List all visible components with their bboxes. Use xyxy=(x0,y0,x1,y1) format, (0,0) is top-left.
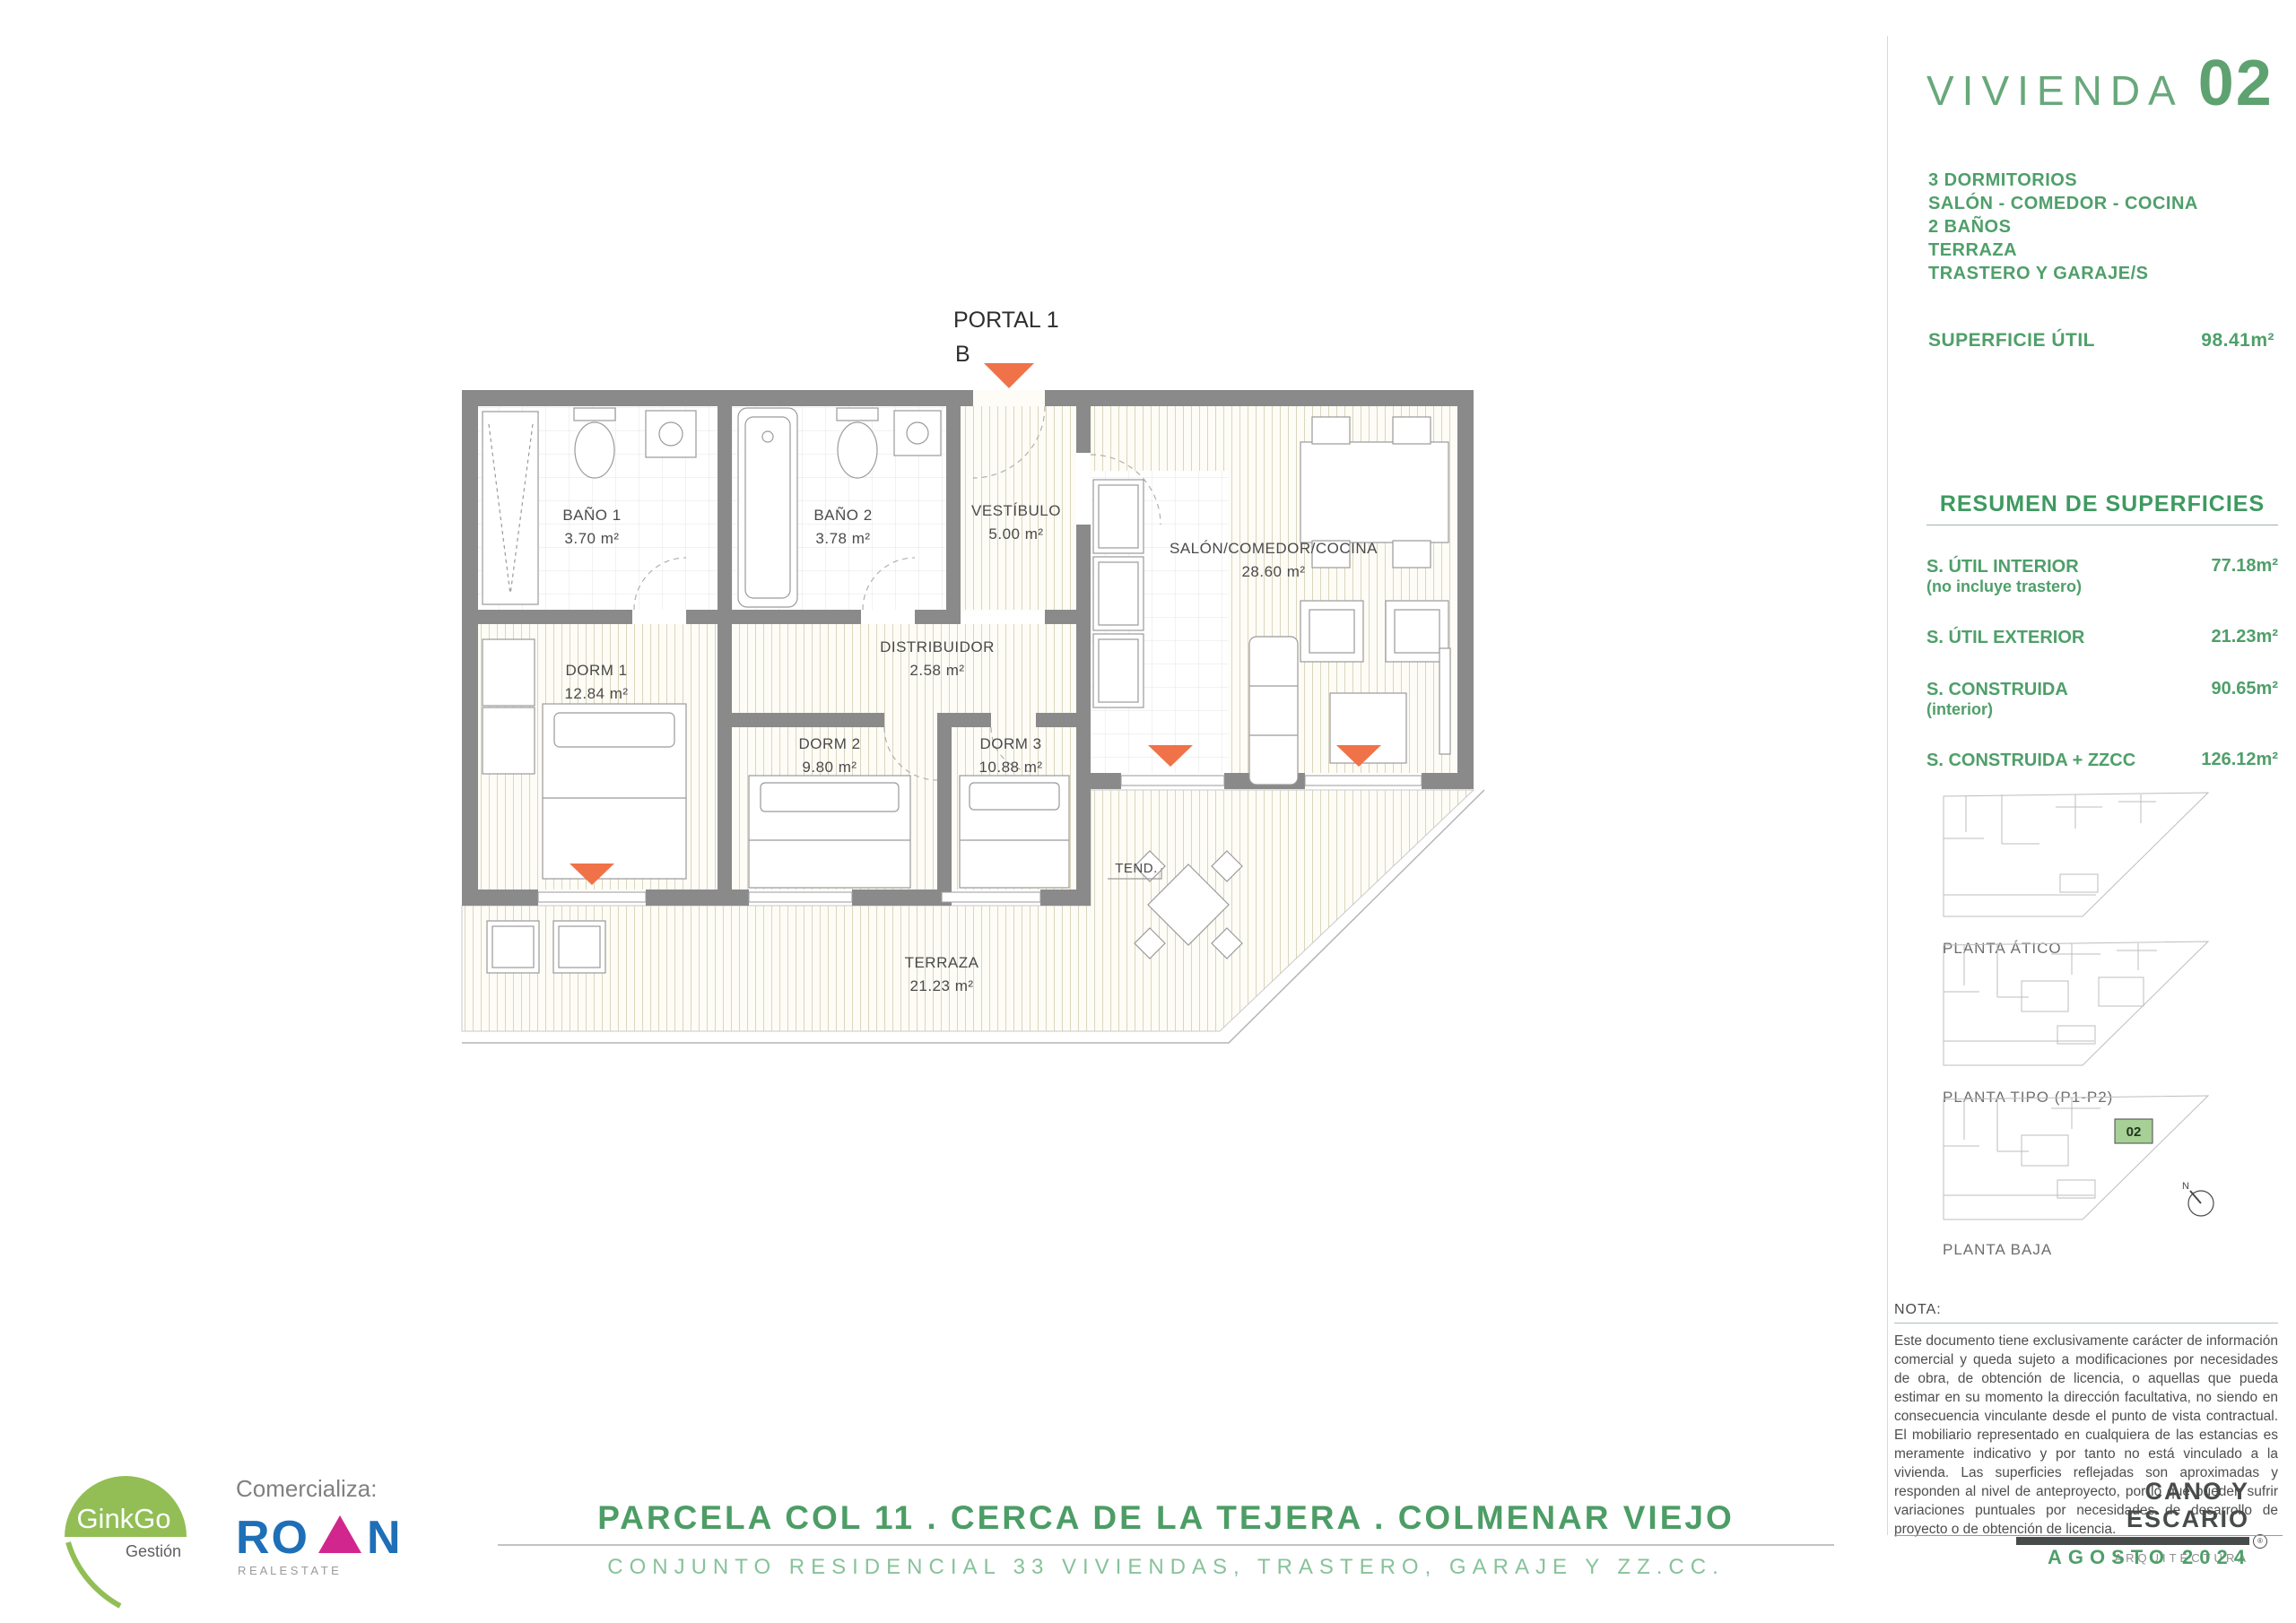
superficie-util-row: SUPERFICIE ÚTIL 98.41m² xyxy=(1928,330,2274,352)
resumen-underline xyxy=(1926,525,2278,525)
unit-title-word: VIVIENDA xyxy=(1926,66,2184,115)
thumbnail-planta-baja: 02 N xyxy=(1939,1092,2244,1227)
thumbnail-planta-atico xyxy=(1939,789,2244,924)
resumen-title: RESUMEN DE SUPERFICIES xyxy=(1926,491,2278,517)
compass-icon: N xyxy=(2182,1181,2213,1216)
thumbnail-label-baja: PLANTA BAJA xyxy=(1943,1241,2052,1259)
roan-right: N xyxy=(367,1512,401,1564)
compass-n-label: N xyxy=(2182,1181,2189,1192)
room-label-dorm1: DORM 1 xyxy=(565,662,627,679)
ginkgo-sub: Gestión xyxy=(126,1542,181,1560)
date-label: AGOSTO 2024 xyxy=(2016,1546,2251,1569)
resumen-row-value: 77.18m² xyxy=(2212,556,2279,577)
feature-item: 3 DORMITORIOS xyxy=(1928,169,2287,192)
ginkgo-logo: GinkGo Gestión xyxy=(56,1467,217,1615)
resumen-row-value: 21.23m² xyxy=(2212,627,2279,647)
footer-center: PARCELA COL 11 . CERCA DE LA TEJERA . CO… xyxy=(498,1499,1834,1580)
registered-mark-icon: ® xyxy=(2253,1534,2267,1549)
room-area-bano2: 3.78 m² xyxy=(815,530,870,547)
resumen-row-label: S. CONSTRUIDA xyxy=(1926,679,2068,700)
thumbnail-planta-tipo xyxy=(1939,938,2244,1072)
room-label-vestibulo: VESTÍBULO xyxy=(971,502,1061,519)
resumen-row-label: S. ÚTIL INTERIOR xyxy=(1926,556,2082,577)
entrance-door-marker-icon xyxy=(984,363,1034,388)
feature-item: TRASTERO Y GARAJE/S xyxy=(1928,262,2287,285)
resumen-row-value: 90.65m² xyxy=(2212,679,2279,699)
roan-logo: RO N R E A L E S T A T E xyxy=(236,1508,433,1584)
feature-item: 2 BAÑOS xyxy=(1928,215,2287,239)
panel-divider xyxy=(1887,36,1888,1535)
floor-plan: PORTAL 1 B xyxy=(453,291,1529,1054)
ginkgo-swoosh xyxy=(68,1542,120,1606)
resumen-row-value: 126.12m² xyxy=(2201,750,2278,770)
comercializa-label: Comercializa: xyxy=(236,1475,378,1503)
room-label-distribuidor: DISTRIBUIDOR xyxy=(880,638,995,655)
unit-title-number: 02 xyxy=(2198,47,2274,120)
resumen-row: S. CONSTRUIDA (interior) 90.65m² xyxy=(1926,679,2278,719)
room-label-bano2: BAÑO 2 xyxy=(813,507,872,524)
project-title: PARCELA COL 11 . CERCA DE LA TEJERA . CO… xyxy=(498,1499,1834,1537)
resumen-row: S. ÚTIL EXTERIOR 21.23m² xyxy=(1926,627,2278,648)
superficie-util-value: 98.41m² xyxy=(2201,330,2274,352)
feature-item: SALÓN - COMEDOR - COCINA xyxy=(1928,192,2287,215)
room-area-bano1: 3.70 m² xyxy=(564,530,619,547)
superficie-util-label: SUPERFICIE ÚTIL xyxy=(1928,330,2095,352)
roan-left: RO xyxy=(236,1512,309,1564)
room-area-dorm2: 9.80 m² xyxy=(802,759,857,776)
room-label-dorm2: DORM 2 xyxy=(798,735,860,752)
resumen-row-sub: (no incluye trastero) xyxy=(1926,577,2082,596)
room-area-vestibulo: 5.00 m² xyxy=(988,525,1043,542)
room-area-dorm1: 12.84 m² xyxy=(564,685,628,702)
room-area-distribuidor: 2.58 m² xyxy=(909,662,964,679)
room-label-salon: SALÓN/COMEDOR/COCINA xyxy=(1170,540,1378,557)
resumen-row: S. ÚTIL INTERIOR (no incluye trastero) 7… xyxy=(1926,556,2278,596)
portal-label: PORTAL 1 xyxy=(953,308,1059,333)
resumen-row-label: S. CONSTRUIDA + ZZCC xyxy=(1926,750,2135,771)
room-label-dorm3: DORM 3 xyxy=(979,735,1041,752)
tendedero-label: TEND. xyxy=(1115,861,1158,876)
feature-list: 3 DORMITORIOS SALÓN - COMEDOR - COCINA 2… xyxy=(1928,169,2287,285)
ginkgo-name: GinkGo xyxy=(76,1503,170,1534)
feature-item: TERRAZA xyxy=(1928,239,2287,262)
unit-highlight-label: 02 xyxy=(2126,1124,2142,1140)
resumen-superficies: RESUMEN DE SUPERFICIES S. ÚTIL INTERIOR … xyxy=(1926,491,2278,771)
room-area-terraza: 21.23 m² xyxy=(909,977,973,994)
roan-sub: R E A L E S T A T E xyxy=(238,1564,339,1577)
architect-divider xyxy=(1894,1535,2283,1536)
architect-bar: ® xyxy=(2016,1537,2249,1545)
resumen-row: S. CONSTRUIDA + ZZCC 126.12m² xyxy=(1926,750,2278,771)
project-subtitle: CONJUNTO RESIDENCIAL 33 VIVIENDAS, TRAST… xyxy=(498,1555,1834,1580)
roan-triangle-icon xyxy=(318,1515,361,1553)
resumen-row-sub: (interior) xyxy=(1926,700,2068,719)
room-area-dorm3: 10.88 m² xyxy=(978,759,1042,776)
nota-underline xyxy=(1894,1323,2278,1324)
nota-label: NOTA: xyxy=(1894,1302,2278,1318)
footer-divider xyxy=(498,1544,1834,1546)
resumen-row-label: S. ÚTIL EXTERIOR xyxy=(1926,627,2084,648)
unit-title: VIVIENDA 02 xyxy=(1926,47,2285,120)
room-area-salon: 28.60 m² xyxy=(1241,563,1305,580)
room-label-terraza: TERRAZA xyxy=(905,954,979,971)
architect-name: CANO Y ESCARIO xyxy=(2016,1478,2249,1533)
room-label-bano1: BAÑO 1 xyxy=(562,507,621,524)
portal-letter: B xyxy=(955,342,970,367)
